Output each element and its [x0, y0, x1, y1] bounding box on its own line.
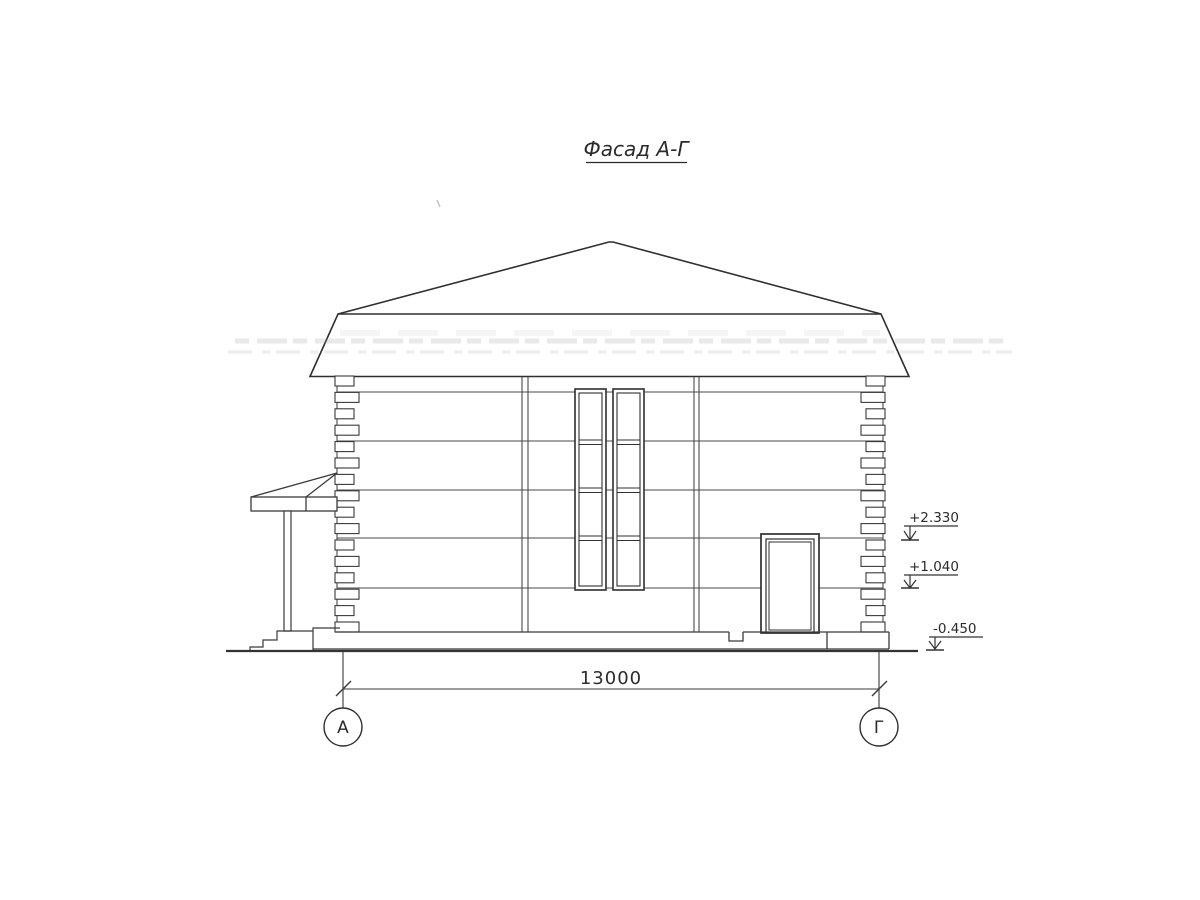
canopy-fascia: [251, 497, 337, 511]
roof-eaves-band: [310, 314, 909, 377]
elevation-value-neg0450: -0.450: [933, 621, 977, 637]
log-end: [335, 491, 359, 501]
elevation-mark-1040: [901, 575, 958, 588]
log-end: [866, 442, 885, 452]
log-end: [861, 524, 885, 534]
log-end: [866, 573, 885, 583]
corner-logs-right: [861, 376, 885, 632]
corner-logs-left: [335, 376, 359, 632]
elevation-value-1040: +1.040: [909, 559, 959, 575]
log-end: [861, 556, 885, 566]
window-muntin: [617, 488, 640, 493]
axis-label-g: Г: [874, 718, 884, 738]
window-muntin: [579, 488, 602, 493]
log-end: [861, 589, 885, 599]
steps-profile: [250, 631, 313, 651]
axis-markers: [324, 708, 898, 746]
log-end: [866, 409, 885, 419]
facade-drawing-sheet: 13000 А Г +2.330 +1.040 -0.450 Фасад А-Г: [0, 0, 1200, 900]
door-leaf: [769, 542, 811, 630]
window-left: [575, 389, 606, 590]
elevation-value-2330: +2.330: [909, 510, 959, 526]
porch-canopy: [251, 473, 337, 511]
log-end: [335, 573, 354, 583]
log-end: [866, 540, 885, 550]
log-end: [335, 622, 359, 632]
window-muntin: [617, 536, 640, 541]
log-end: [335, 425, 359, 435]
plinth: [313, 632, 889, 649]
log-end: [335, 540, 354, 550]
log-end: [335, 392, 359, 402]
log-end: [861, 425, 885, 435]
elevation-mark-neg0450: [926, 637, 983, 650]
log-end: [866, 376, 885, 386]
log-end: [861, 622, 885, 632]
log-end: [335, 474, 354, 484]
axis-label-a: А: [337, 718, 349, 738]
log-end: [861, 392, 885, 402]
log-end: [335, 442, 354, 452]
log-end: [866, 606, 885, 616]
roof-ridge: [338, 242, 881, 314]
log-end: [335, 458, 359, 468]
elevation-mark-2330: [901, 526, 958, 540]
canopy-hip-edge: [306, 473, 337, 497]
log-end: [335, 507, 354, 517]
window-right: [613, 389, 644, 590]
log-end: [861, 458, 885, 468]
log-end: [335, 409, 354, 419]
canopy-slope-edge: [251, 473, 337, 497]
log-end: [335, 556, 359, 566]
log-end: [335, 376, 354, 386]
hip-roof: [310, 242, 909, 377]
window-muntin: [579, 536, 602, 541]
log-end: [335, 589, 359, 599]
log-end: [866, 507, 885, 517]
log-end: [861, 491, 885, 501]
dimension-value: 13000: [580, 668, 642, 689]
window-muntin: [579, 440, 602, 445]
drawing-title: Фасад А-Г: [584, 137, 691, 161]
entry-steps-left: [250, 628, 340, 651]
porch-post: [284, 511, 291, 631]
door-step-notch: [729, 632, 743, 641]
log-end: [335, 606, 354, 616]
log-end: [866, 474, 885, 484]
log-end: [335, 524, 359, 534]
entry-door: [761, 534, 819, 633]
window-muntin: [617, 440, 640, 445]
scan-speck: [437, 200, 440, 207]
